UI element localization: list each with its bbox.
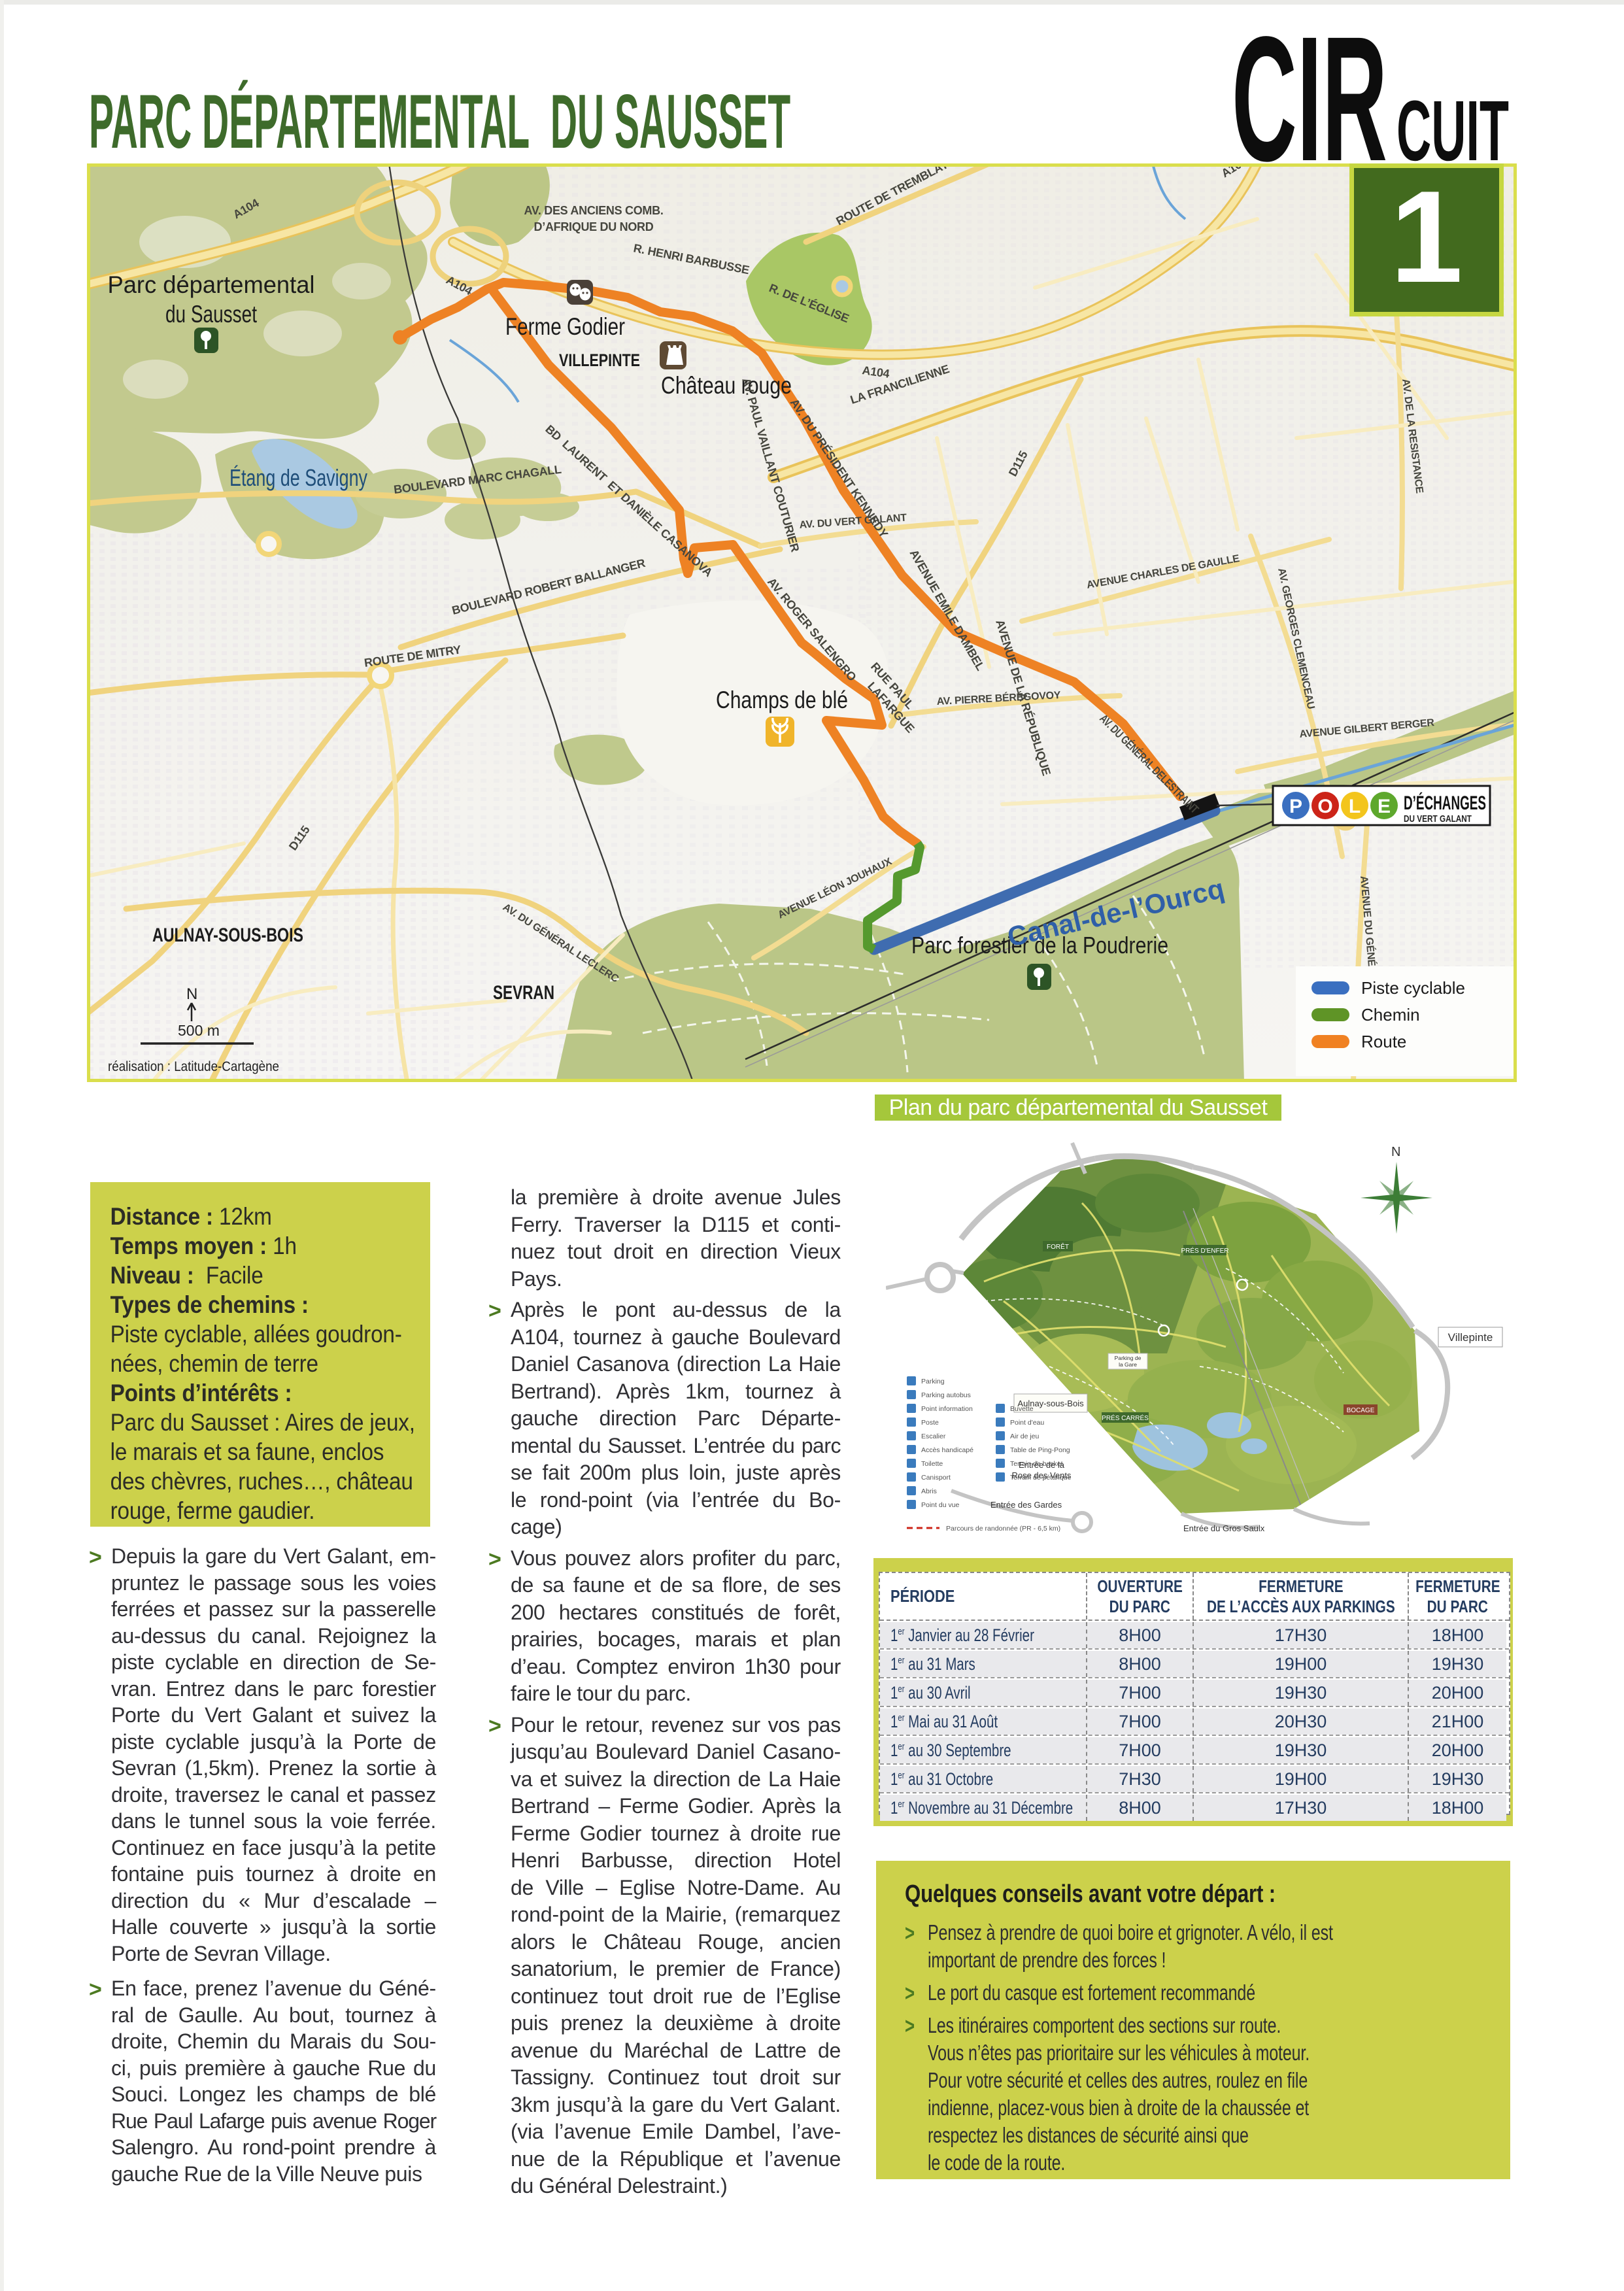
svg-text:FORÊT: FORÊT [1047, 1242, 1069, 1251]
svg-text:D’ÉCHANGES: D’ÉCHANGES [1404, 792, 1486, 814]
svg-text:la Gare: la Gare [1119, 1361, 1137, 1368]
svg-text:VILLEPINTE: VILLEPINTE [559, 350, 640, 370]
svg-text:Terrain de basket: Terrain de basket [1010, 1460, 1063, 1468]
svg-text:Ferme Godier: Ferme Godier [505, 313, 625, 340]
svg-text:E: E [1378, 796, 1391, 817]
svg-text:Champs de blé: Champs de blé [716, 687, 848, 713]
svg-text:Point d'eau: Point d'eau [1010, 1419, 1044, 1427]
svg-text:DU VERT GALANT: DU VERT GALANT [1404, 813, 1472, 824]
svg-text:Escalier: Escalier [921, 1433, 946, 1440]
svg-text:Parking: Parking [921, 1378, 945, 1385]
svg-text:Canisport: Canisport [921, 1474, 951, 1482]
svg-text:Route: Route [1361, 1032, 1406, 1051]
svg-text:L: L [1349, 796, 1361, 817]
svg-text:CUIT: CUIT [1396, 82, 1509, 170]
svg-text:Accès handicapé: Accès handicapé [921, 1446, 973, 1454]
svg-text:du Sausset: du Sausset [165, 301, 258, 328]
svg-text:O: O [1317, 796, 1332, 817]
svg-text:Parking de: Parking de [1115, 1355, 1142, 1361]
svg-text:Air de jeu: Air de jeu [1010, 1433, 1040, 1440]
svg-text:Entrée des Gardes: Entrée des Gardes [990, 1500, 1062, 1510]
svg-text:Point information: Point information [921, 1405, 973, 1413]
svg-text:Point du vue: Point du vue [921, 1501, 960, 1509]
svg-text:Poste: Poste [921, 1419, 939, 1427]
svg-text:AV. DES ANCIENS COMB.: AV. DES ANCIENS COMB. [524, 204, 663, 217]
svg-text:Terrain de pétanque: Terrain de pétanque [1010, 1474, 1072, 1482]
svg-text:Entrée du Gros Saulx: Entrée du Gros Saulx [1183, 1523, 1265, 1533]
svg-text:Parcours de randonnée (PR - 6,: Parcours de randonnée (PR - 6,5 km) [946, 1525, 1060, 1533]
svg-text:réalisation : Latitude-Cartagè: réalisation : Latitude-Cartagène [108, 1059, 279, 1074]
svg-text:Toilette: Toilette [921, 1460, 943, 1468]
svg-text:500 m: 500 m [178, 1022, 220, 1039]
svg-text:P: P [1289, 796, 1302, 817]
svg-text:Parc départemental: Parc départemental [108, 271, 315, 298]
svg-text:Étang de Savigny: Étang de Savigny [229, 464, 367, 491]
svg-text:Villepinte: Villepinte [1448, 1331, 1493, 1344]
svg-text:CIR: CIR [1232, 20, 1387, 170]
svg-text:Chemin: Chemin [1361, 1005, 1420, 1025]
svg-text:Parking autobus: Parking autobus [921, 1391, 971, 1399]
svg-text:Table de Ping-Pong: Table de Ping-Pong [1010, 1446, 1070, 1454]
svg-text:BOCAGE: BOCAGE [1347, 1407, 1375, 1414]
svg-text:N: N [1391, 1145, 1400, 1159]
svg-text:Château rouge: Château rouge [661, 372, 792, 399]
svg-text:D’AFRIQUE DU NORD: D’AFRIQUE DU NORD [534, 220, 654, 233]
svg-text:AULNAY-SOUS-BOIS: AULNAY-SOUS-BOIS [152, 925, 303, 946]
svg-text:PRÉS CARRÉS: PRÉS CARRÉS [1102, 1414, 1149, 1422]
svg-text:Abris: Abris [921, 1487, 937, 1495]
svg-text:SEVRAN: SEVRAN [493, 982, 554, 1004]
svg-text:Piste cyclable: Piste cyclable [1361, 978, 1465, 998]
svg-text:N: N [186, 985, 197, 1003]
svg-text:Buvette: Buvette [1010, 1405, 1034, 1413]
svg-text:PRÉS D'ENFER: PRÉS D'ENFER [1181, 1246, 1228, 1255]
